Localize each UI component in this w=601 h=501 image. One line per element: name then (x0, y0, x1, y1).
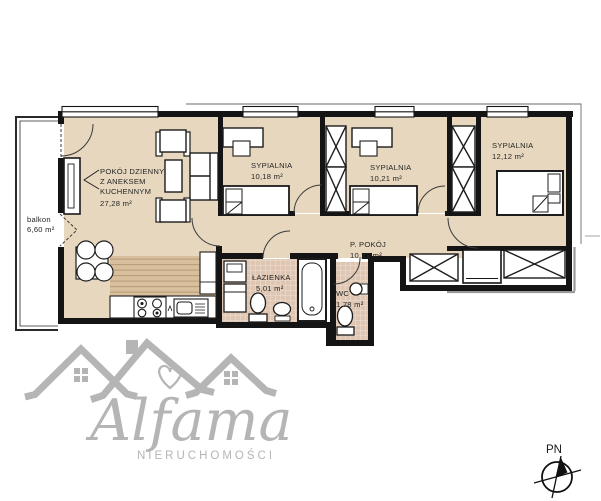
window-bedroom3 (487, 107, 528, 118)
entrance-door (463, 250, 501, 283)
hallway-area: 10,21 m² (350, 251, 382, 260)
left-house-window-icon (74, 368, 88, 382)
fridge (200, 252, 216, 294)
wardrobe-bedroom2-top (326, 126, 346, 167)
double-bed (497, 171, 563, 215)
hallway-floor (218, 214, 478, 258)
dining-chair (77, 263, 95, 281)
single-bed (223, 186, 289, 215)
wardrobe-bedroom3-bottom (452, 167, 475, 212)
living-label-2: Z ANEKSEM (100, 177, 146, 186)
wardrobe-hall-left (410, 254, 458, 281)
wc-area: 1,78 m² (336, 300, 364, 309)
washbasin (274, 303, 291, 322)
floor-plan: balkon 6,60 m² (0, 0, 601, 501)
sofa (190, 153, 218, 200)
washing-machine (224, 284, 246, 312)
balcony-area: 6,60 m² (27, 225, 55, 234)
brand-name: Alfama (85, 388, 293, 454)
kitchen-sink (168, 299, 208, 317)
right-house-window-icon (224, 371, 238, 385)
bedroom3-label: SYPIALNIA (492, 141, 534, 150)
bathroom-cabinet-top (224, 261, 246, 282)
wardrobe-bedroom3-top (452, 126, 475, 167)
desk-chair (233, 141, 250, 156)
hallway-label: P. POKÓJ (350, 240, 386, 249)
wc-label: WC (336, 289, 349, 298)
agency-watermark: Alfama NIERUCHOMOŚCI (25, 340, 293, 462)
bedroom2-area: 10,21 m² (370, 174, 402, 183)
bathroom-area: 5,01 m² (256, 284, 284, 293)
floor-plan-page: balkon 6,60 m² (0, 0, 601, 501)
living-area: 27,28 m² (100, 199, 132, 208)
window-living (62, 107, 158, 118)
compass-north-label: PN (546, 444, 562, 456)
balcony: balkon 6,60 m² (16, 117, 58, 330)
toilet-bathroom (249, 293, 267, 322)
compass: PN (534, 444, 581, 498)
armchair-top (156, 130, 190, 156)
bedroom1-area: 10,18 m² (251, 172, 283, 181)
living-label-3: KUCHENNYM (100, 187, 151, 196)
dining-chair (95, 241, 113, 259)
chimney-icon (126, 340, 138, 354)
stove (134, 297, 166, 318)
balcony-label: balkon (27, 215, 51, 224)
toilet-wc (337, 306, 354, 335)
bathtub (298, 259, 326, 321)
window-bedroom1 (243, 107, 298, 118)
armchair-bottom (156, 198, 190, 222)
wc-corner-sink (350, 283, 368, 295)
brand-subtitle: NIERUCHOMOŚCI (137, 449, 275, 462)
dining-set (76, 241, 113, 281)
single-bed (350, 186, 417, 215)
dining-chair (95, 263, 113, 281)
bedroom2-label: SYPIALNIA (370, 163, 412, 172)
wardrobe-bedroom2-bottom (326, 167, 346, 212)
bathroom-label: ŁAZIENKA (252, 273, 291, 282)
dining-chair (77, 241, 95, 259)
bedroom3-furniture (497, 171, 563, 215)
wardrobe-hall-right (504, 250, 565, 278)
bedroom1-label: SYPIALNIA (251, 161, 293, 170)
living-label-1: POKÓJ DZIENNY (100, 167, 164, 176)
window-bedroom2 (375, 107, 414, 118)
coffee-table (165, 160, 182, 192)
desk-chair (360, 141, 377, 156)
bedroom3-area: 12,12 m² (492, 152, 524, 161)
